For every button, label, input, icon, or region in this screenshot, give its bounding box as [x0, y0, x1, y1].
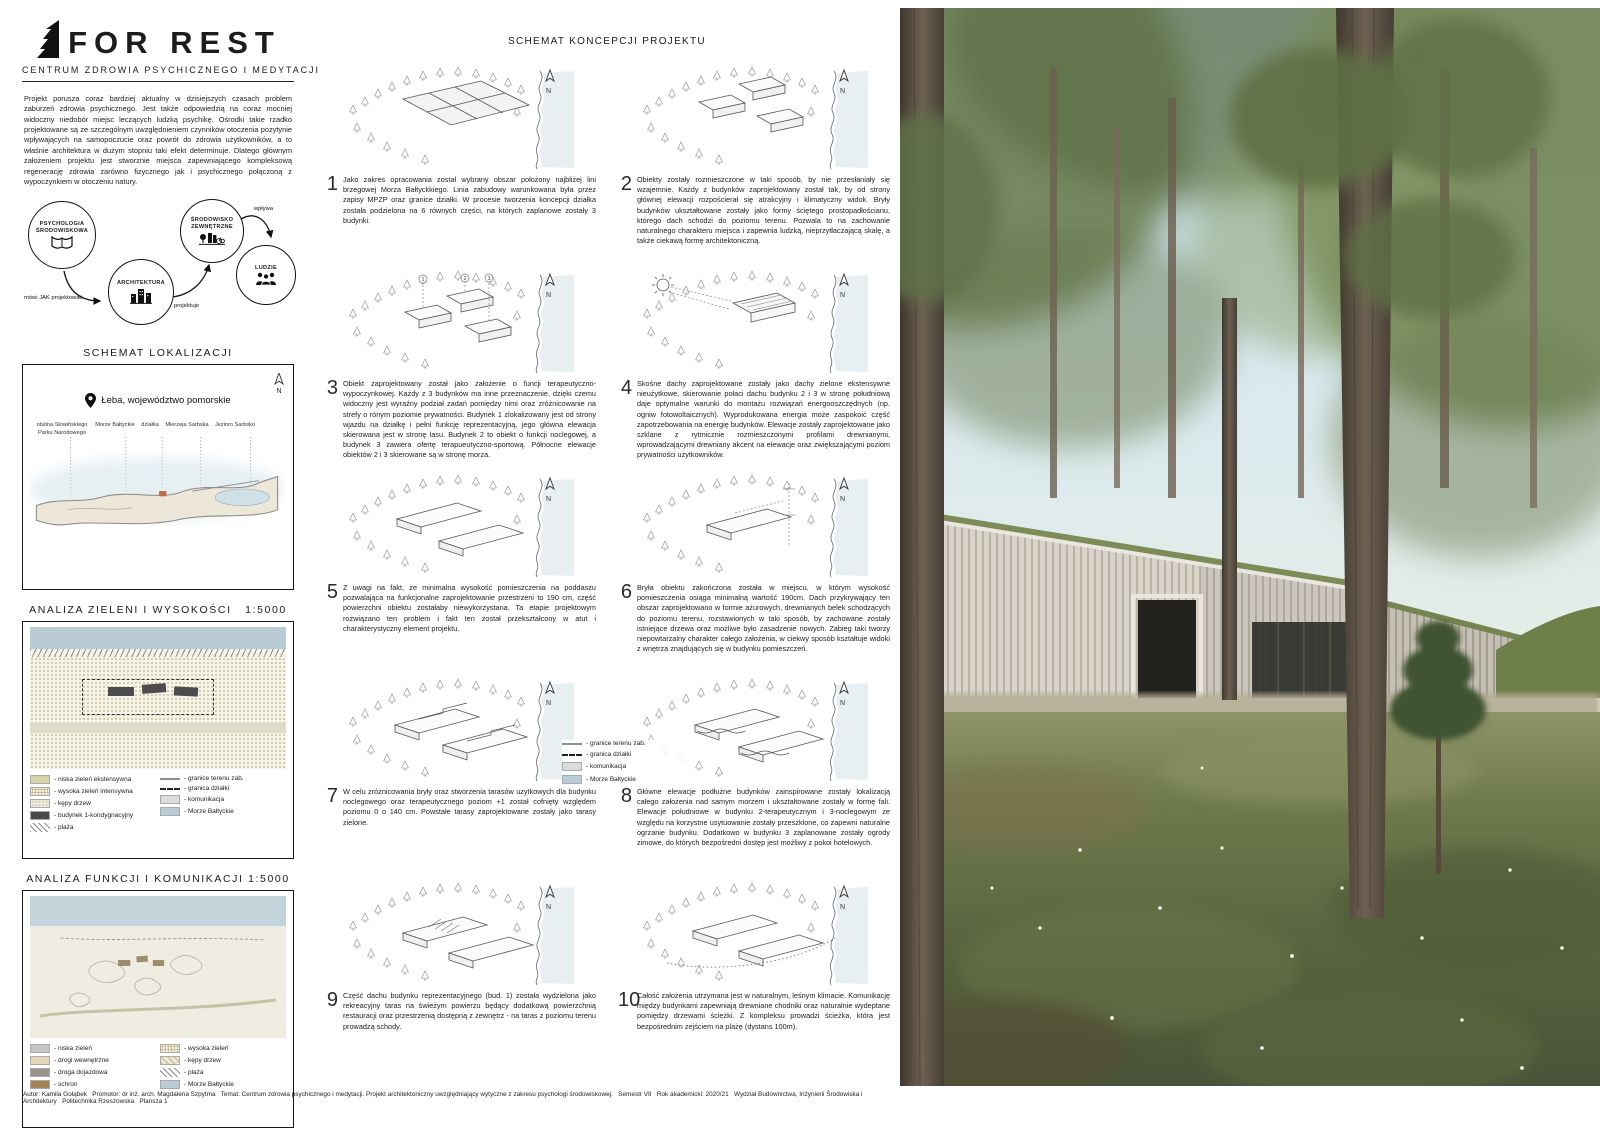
flow-arrow2-label: projektuje [174, 303, 199, 309]
analysis-green-box: - niska zieleń ekstensywna - wysoka ziel… [22, 621, 294, 859]
park-icon [199, 231, 225, 245]
legend-swatch [160, 807, 180, 816]
legend-swatch [160, 1044, 180, 1053]
building-marker: 1 [421, 277, 424, 283]
north-letter: N [840, 88, 845, 95]
concept-item-6: N 6 Bryła obiektu zakończona została w m… [612, 471, 896, 675]
item-text: Główne elewacje podłużne budynków zainsp… [637, 787, 890, 848]
building-footprint [108, 687, 134, 696]
legend-label: - granice terenu zab. [184, 775, 244, 782]
item-text: Bryła obiektu zakończona została w miejs… [637, 583, 890, 654]
analysis-function-legend: - niska zieleń - drogi wewnętrzne - drog… [30, 1044, 286, 1089]
divider [22, 81, 294, 82]
localization-map [29, 437, 285, 541]
map-label: otulina Słowińskiego Parku Narodowego [29, 422, 95, 437]
north-letter: N [546, 496, 551, 503]
legend-swatch [160, 795, 180, 804]
legend-swatch [30, 1068, 50, 1077]
legend-label: - plaża [184, 1069, 204, 1076]
item-number: 9 [324, 991, 338, 1032]
concept-diagram-10: N [637, 883, 872, 989]
concept-title: SCHEMAT KONCEPCJI PROJEKTU [318, 36, 896, 47]
concept-diagram-6: N [637, 475, 872, 581]
legend-label: - komunikacja [184, 796, 224, 803]
legend-label: - niska zieleń [54, 1045, 92, 1052]
photo-render [900, 8, 1600, 1086]
open-book-icon [50, 235, 74, 250]
legend-label: - komunikacja [586, 763, 626, 770]
map-label: Morze Bałtyckie [95, 422, 135, 437]
concept-item-10: N 10 Całość założenia utrzymana jest w n… [612, 879, 896, 1083]
localization-title: SCHEMAT LOKALIZACJI [22, 347, 294, 359]
legend-swatch [30, 1080, 50, 1089]
flow-node-architecture: ARCHITEKTURA [108, 259, 174, 325]
north-letter: N [546, 292, 551, 299]
people-icon [255, 272, 277, 285]
item-text: Obiekt zaprojektowany został jako założe… [343, 379, 596, 461]
analysis-green-title: ANALIZA ZIELENI I WYSOKOŚCI 1:5000 [22, 604, 294, 616]
analysis-function-title: ANALIZA FUNKCJI I KOMUNIKACJI 1:5000 [22, 873, 294, 885]
flow-node-psychology: PSYCHOLOGIA ŚRODOWISKOWA [28, 201, 96, 269]
item-number: 1 [324, 175, 338, 226]
item-number: 2 [618, 175, 632, 246]
item-number: 8 [618, 787, 632, 848]
legend-swatch [30, 811, 50, 820]
concept-item-4: N 4 Skośne dachy zaprojektowane zostały … [612, 267, 896, 471]
legend-label: - wysoka zieleń intensywna [54, 788, 133, 795]
concept-legend: - granice terenu zab. - granica działki … [562, 740, 694, 784]
legend-swatch [30, 799, 50, 808]
north-letter: N [840, 700, 845, 707]
concept-diagram-4: N [637, 271, 872, 377]
legend-label: - kępy drzew [184, 1057, 221, 1064]
building-footprint [174, 687, 198, 697]
flow-arrow1-label: mówi JAK projektować [24, 295, 82, 301]
flow-arrow3-label: wpływa [253, 206, 274, 212]
legend-label: - granica działki [184, 785, 229, 792]
north-arrow: N [273, 373, 285, 400]
legend-swatch [30, 787, 50, 796]
north-letter: N [277, 388, 282, 395]
place-label: Łeba, województwo pomorskie [101, 395, 230, 406]
site-marker [159, 491, 166, 496]
logo-subtitle: CENTRUM ZDROWIA PSYCHICZNEGO I MEDYTACJI [22, 65, 294, 75]
concept-diagram-3: 1 2 3 N [343, 271, 578, 377]
north-letter: N [840, 292, 845, 299]
left-panel: FOR REST CENTRUM ZDROWIA PSYCHICZNEGO I … [22, 14, 294, 1128]
map-label: Jezioro Sarbsko [209, 422, 261, 437]
north-letter: N [840, 496, 845, 503]
item-text: Część dachu budynku reprezentacyjnego (b… [343, 991, 596, 1032]
item-number: 5 [324, 583, 338, 634]
item-text: Obiekty zostały rozmieszczone w taki spo… [637, 175, 890, 246]
item-number: 3 [324, 379, 338, 461]
half-pine-logo-icon [35, 20, 62, 58]
legend-label: - schron [54, 1081, 77, 1088]
flow-node-people: LUDZIE [236, 245, 296, 305]
map-labels: otulina Słowińskiego Parku Narodowego Mo… [29, 422, 287, 437]
item-text: W celu zróżnicowania bryły oraz stworzen… [343, 787, 596, 828]
legend-swatch [160, 1080, 180, 1089]
concept-item-3: 1 2 3 N 3 Obiekt zaprojektowany został j… [318, 267, 602, 471]
legend-swatch [160, 1068, 180, 1077]
item-text: Jako zakres opracowania został wybrany o… [343, 175, 596, 226]
north-letter: N [546, 904, 551, 911]
flow-node-label: ARCHITEKTURA [112, 280, 170, 287]
legend-label: - kępy drzew [54, 800, 91, 807]
legend-swatch [30, 1056, 50, 1065]
glazing-band [1252, 622, 1358, 698]
item-text: Z uwagi na fakt, że minimalna wysokość p… [343, 583, 596, 634]
item-number: 10 [618, 991, 632, 1032]
concept-diagram-7: N [343, 679, 578, 785]
pine-trunk-mid [1222, 298, 1237, 700]
legend-swatch [562, 754, 582, 756]
map-label: Mierzeja Sarbska [165, 422, 209, 437]
legend-swatch [562, 762, 582, 771]
concept-item-5: N 5 Z uwagi na fakt, że minimalna wysoko… [318, 471, 602, 675]
legend-swatch [562, 743, 582, 745]
concept-item-1: N 1 Jako zakres opracowania został wybra… [318, 63, 602, 267]
concept-item-2: N 2 Obiekty zostały rozmieszczone w taki… [612, 63, 896, 267]
flow-node-environment: ŚRODOWISKO ZEWNĘTRZNE [180, 199, 244, 263]
concept-grid: N 1 Jako zakres opracowania został wybra… [318, 63, 896, 1083]
concept-diagram-5: N [343, 475, 578, 581]
north-letter: N [840, 904, 845, 911]
legend-label: - wysoka zieleń [184, 1045, 228, 1052]
legend-label: - granica działki [586, 751, 631, 758]
legend-swatch [160, 778, 180, 780]
north-letter: N [546, 88, 551, 95]
place-row: Łeba, województwo pomorskie [29, 393, 287, 408]
legend-swatch [30, 1044, 50, 1053]
map-pin-icon [85, 393, 96, 408]
building-marker: 3 [487, 276, 490, 282]
concept-diagram-1: N [343, 67, 578, 173]
buildings-icon [130, 287, 152, 304]
localization-map-box: N Łeba, województwo pomorskie otulina Sł… [22, 364, 294, 590]
legend-swatch [562, 775, 582, 784]
intro-paragraph: Projekt porusza coraz bardziej aktualny … [24, 94, 292, 187]
flow-node-label: LUDZIE [250, 265, 282, 272]
flow-node-label: ŚRODOWISKO ZEWNĘTRZNE [181, 217, 243, 231]
logo: FOR REST [22, 20, 294, 58]
concept-item-7: N 7 W celu zróżnicowania bryły oraz stwo… [318, 675, 602, 879]
item-number: 6 [618, 583, 632, 654]
legend-swatch [30, 775, 50, 784]
road-strip [30, 723, 286, 733]
analysis-green-map [30, 627, 286, 769]
glass-door [1138, 600, 1196, 698]
legend-label: - Morze Bałtyckie [184, 1081, 234, 1088]
legend-swatch [160, 1056, 180, 1065]
legend-label: - Morze Bałtyckie [184, 808, 234, 815]
footer-credits: Autor: Kamila Gołąbek Promotor: dr inż. … [23, 1091, 893, 1105]
item-number: 7 [324, 787, 338, 828]
map-label: działka [135, 422, 165, 437]
forest-scene [900, 8, 1600, 1086]
flow-node-label: PSYCHOLOGIA ŚRODOWISKOWA [29, 221, 95, 235]
concept-item-9: N 9 Część dachu budynku reprezentacyjneg… [318, 879, 602, 1083]
legend-label: - niska zieleń ekstensywna [54, 776, 131, 783]
concept-flow-diagram: mówi JAK projektować projektuje wpływa P… [22, 197, 294, 333]
sea-strip [30, 896, 286, 926]
item-text: Całość założenia utrzymana jest w natura… [637, 991, 890, 1032]
item-text: Skośne dachy zaprojektowane zostały jako… [637, 379, 890, 461]
legend-swatch [160, 788, 180, 790]
analysis-function-map [30, 896, 286, 1038]
legend-label: - drogi wewnętrzne [54, 1057, 109, 1064]
legend-label: - droga dojazdowa [54, 1069, 107, 1076]
item-number: 4 [618, 379, 632, 461]
concept-diagram-9: N [343, 883, 578, 989]
logo-title: FOR REST [68, 27, 281, 58]
concept-diagram-2: N [637, 67, 872, 173]
legend-label: - budynek 1-kondygnacyjny [54, 812, 133, 819]
north-letter: N [546, 700, 551, 707]
building-marker: 2 [463, 276, 466, 282]
analysis-green-legend: - niska zieleń ekstensywna - wysoka ziel… [30, 775, 286, 832]
legend-swatch [30, 823, 50, 832]
legend-label: - granice terenu zab. [586, 740, 646, 747]
legend-label: - plaża [54, 824, 74, 831]
beach-hatch [30, 649, 286, 657]
concept-panel: SCHEMAT KONCEPCJI PROJEKTU - granice ter… [318, 14, 896, 1083]
sea-strip [30, 627, 286, 649]
legend-label: - Morze Bałtyckie [586, 776, 636, 783]
